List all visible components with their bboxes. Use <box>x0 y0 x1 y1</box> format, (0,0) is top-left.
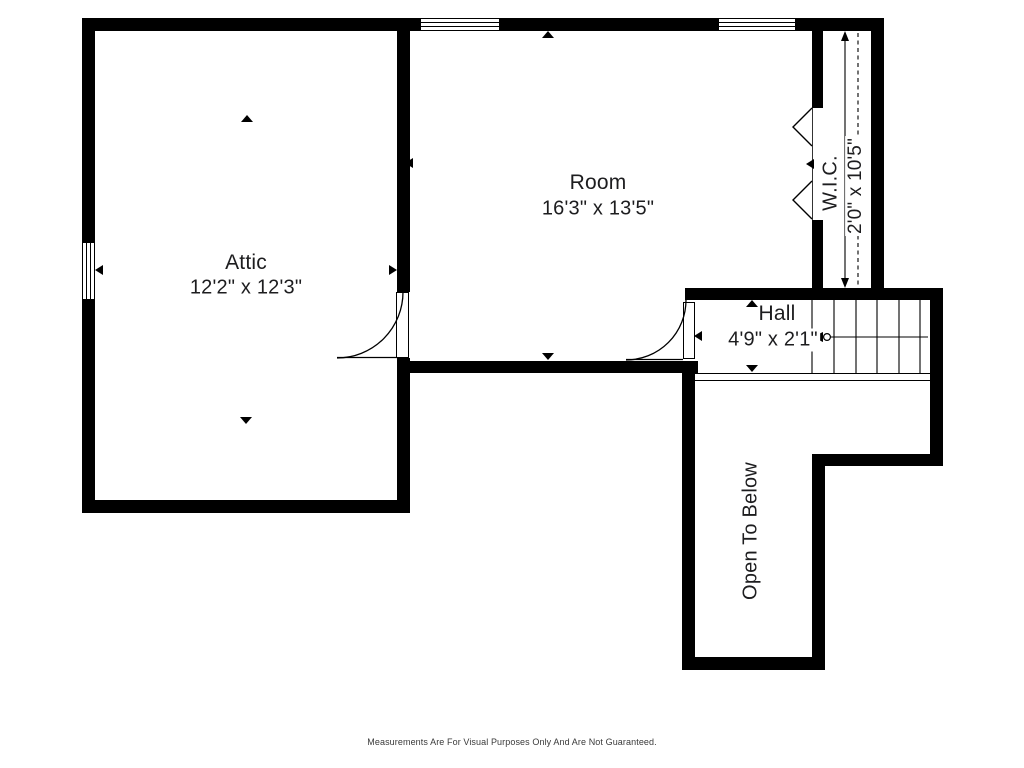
attic-door-swing <box>337 292 403 358</box>
attic-dimensions: 12'2" x 12'3" <box>190 277 302 300</box>
hall-dimensions: 4'9" x 2'1" <box>726 329 820 352</box>
attic-label: Attic <box>225 251 267 275</box>
hall-door-swing <box>626 300 686 360</box>
room-dimensions: 16'3" x 13'5" <box>542 198 654 221</box>
wic-label: W.I.C. <box>820 153 843 213</box>
hall-label: Hall <box>759 302 796 326</box>
disclaimer-text: Measurements Are For Visual Purposes Onl… <box>367 737 656 747</box>
stairs-direction-arrow <box>812 332 928 342</box>
plan-linework <box>0 0 1024 768</box>
open-to-below-label: Open To Below <box>740 462 763 600</box>
floor-plan: Attic 12'2" x 12'3" Room 16'3" x 13'5" H… <box>0 0 1024 768</box>
hall-bottom-edge <box>695 374 930 381</box>
direction-markers <box>95 31 814 424</box>
wic-dimensions: 2'0" x 10'5" <box>845 136 867 236</box>
room-label: Room <box>570 171 627 195</box>
